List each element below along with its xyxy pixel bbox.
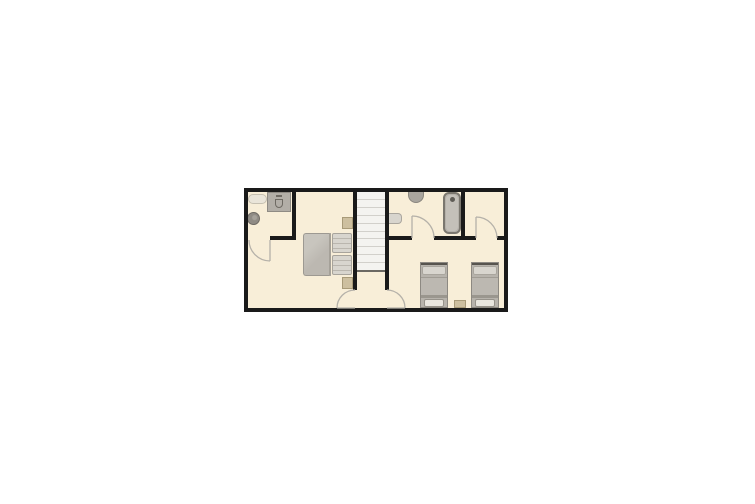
floor-plan — [244, 188, 508, 312]
door-master-bedroom — [337, 290, 355, 308]
door-swings — [244, 188, 508, 312]
door-bathroom-second — [412, 216, 434, 238]
door-twin-bedroom — [387, 290, 405, 308]
door-bathroom-main — [249, 240, 270, 261]
door-closet — [476, 217, 497, 238]
